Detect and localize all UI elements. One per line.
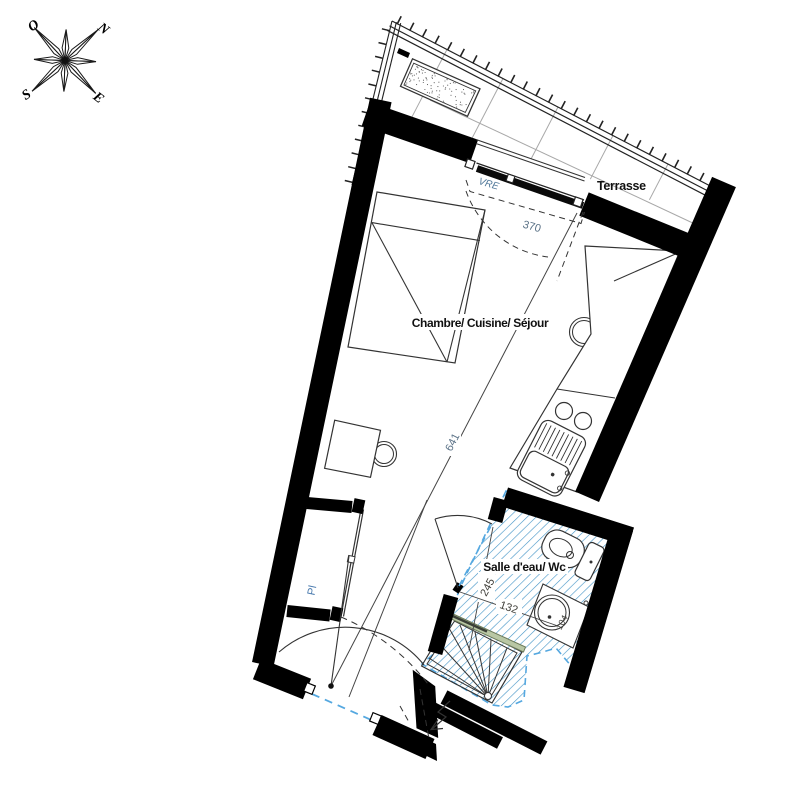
svg-text:Salle d'eau/ Wc: Salle d'eau/ Wc [483, 560, 566, 574]
svg-text:Terrasse: Terrasse [597, 179, 646, 193]
svg-text:Chambre/ Cuisine/ Séjour: Chambre/ Cuisine/ Séjour [412, 316, 549, 330]
